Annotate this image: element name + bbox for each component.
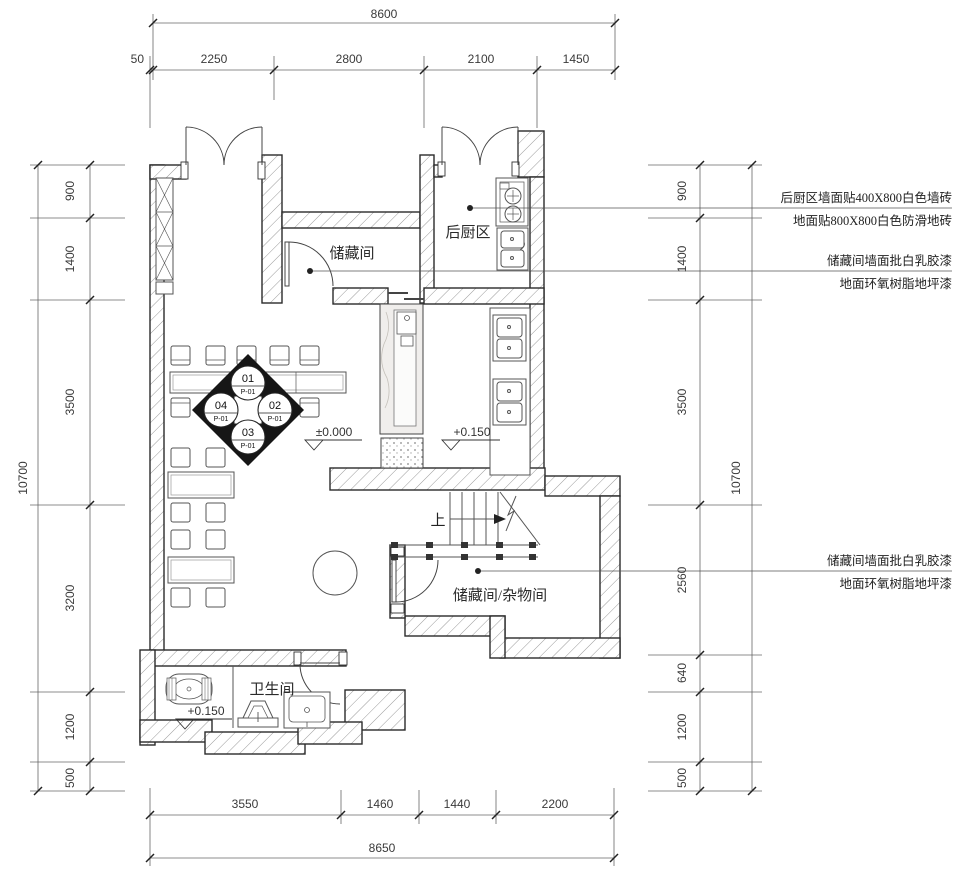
dim-left-3500: 3500 xyxy=(63,388,77,415)
annotation-kitchen-wall: 后厨区墙面贴400X800白色墙砖 xyxy=(780,190,952,205)
annotation-kitchen-floor: 地面贴800X800白色防滑地砖 xyxy=(793,213,952,228)
wall-top-right-corner xyxy=(518,131,544,177)
leader-dot-storage xyxy=(307,268,313,274)
dim-left-1200: 1200 xyxy=(63,713,77,740)
dim-left-1400: 1400 xyxy=(63,245,77,272)
stove xyxy=(496,178,528,226)
wall-kitchen-left xyxy=(420,155,434,303)
annotation-storage-wall: 储藏间墙面批白乳胶漆 xyxy=(827,253,952,268)
annotation-storage-floor: 地面环氧树脂地坪漆 xyxy=(839,276,952,291)
room-label-storage-lower: 储藏间/杂物间 xyxy=(453,587,547,604)
wall-storage-bottom xyxy=(333,288,388,304)
room-label-bathroom: 卫生间 xyxy=(249,681,294,698)
kitchen-double-door xyxy=(442,127,518,165)
dim-bot-total: 8650 xyxy=(369,841,396,855)
squat-pan xyxy=(238,701,278,727)
entry-double-door xyxy=(186,127,262,165)
toilet xyxy=(166,674,212,704)
walls xyxy=(140,131,620,754)
shaft-column xyxy=(381,438,423,468)
index-right-ref: P-01 xyxy=(268,416,283,423)
dim-right-500: 500 xyxy=(675,768,689,788)
dim-left-900: 900 xyxy=(63,181,77,201)
annotation-storage2-floor: 地面环氧树脂地坪漆 xyxy=(839,576,952,591)
dim-bot-3550: 3550 xyxy=(232,797,259,811)
index-left-ref: P-01 xyxy=(214,416,229,423)
dim-right-1400: 1400 xyxy=(675,245,689,272)
prep-sink-counter xyxy=(490,308,530,475)
stair-cut-line xyxy=(500,492,540,545)
level-bathroom-value: +0.150 xyxy=(187,704,224,718)
wall-right-lower xyxy=(600,496,620,658)
wall-storage-top xyxy=(282,212,420,228)
wall-bath-bottom-1 xyxy=(140,720,212,742)
leader-dot-kitchen xyxy=(467,205,473,211)
index-right-num: 02 xyxy=(269,400,281,412)
dim-right-total: 10700 xyxy=(729,461,743,495)
round-table xyxy=(313,551,357,595)
dim-bot-1460: 1460 xyxy=(367,797,394,811)
island-marble-counter xyxy=(380,304,423,434)
dim-top-total: 8600 xyxy=(371,7,398,21)
dim-right-640: 640 xyxy=(675,663,689,683)
room-label-storage-top: 储藏间 xyxy=(329,245,374,262)
dim-left-total: 10700 xyxy=(16,461,30,495)
dim-left-500: 500 xyxy=(63,768,77,788)
dim-bot-2200: 2200 xyxy=(542,797,569,811)
wall-bath-bottom-2 xyxy=(205,732,305,754)
dim-top-2800: 2800 xyxy=(336,52,363,66)
dim-right-2560: 2560 xyxy=(675,566,689,593)
dim-left-3200: 3200 xyxy=(63,584,77,611)
wall-cabinet xyxy=(156,178,173,294)
floor-plan-drawing: 8600 50 2250 2800 2100 1450 3550 1460 14… xyxy=(0,0,960,880)
dim-right-900: 900 xyxy=(675,181,689,201)
stairs xyxy=(390,492,540,560)
level-dining xyxy=(305,440,362,450)
storage-door xyxy=(285,242,333,286)
dim-top-2250: 2250 xyxy=(201,52,228,66)
wall-ext-top xyxy=(545,476,620,496)
level-dining-value: ±0.000 xyxy=(316,425,353,439)
dim-top-2100: 2100 xyxy=(468,52,495,66)
wall-right-upper xyxy=(530,177,544,480)
dim-right-3500: 3500 xyxy=(675,388,689,415)
wall-bath-top xyxy=(150,650,346,666)
table-column xyxy=(168,448,234,607)
room-label-kitchen: 后厨区 xyxy=(445,224,490,241)
dim-top-1450: 1450 xyxy=(563,52,590,66)
leader-dot-storage-lower xyxy=(475,568,481,574)
pass-through-slider xyxy=(388,293,424,299)
wall-store2-bottom-right xyxy=(500,638,620,658)
stair-landing-partition xyxy=(390,542,538,560)
dim-right-1200: 1200 xyxy=(675,713,689,740)
stair-up-label: 上 xyxy=(430,512,445,529)
wall-kitchen-bottom xyxy=(424,288,544,304)
annotation-storage2-wall: 储藏间墙面批白乳胶漆 xyxy=(827,553,952,568)
floor-plan-canvas: 8600 50 2250 2800 2100 1450 3550 1460 14… xyxy=(0,0,960,880)
level-kitchen-value: +0.150 xyxy=(453,425,490,439)
index-bottom-ref: P-01 xyxy=(241,443,256,450)
dim-top-50: 50 xyxy=(131,52,145,66)
dim-bot-1440: 1440 xyxy=(444,797,471,811)
index-top-ref: P-01 xyxy=(241,389,256,396)
index-left-num: 04 xyxy=(215,400,227,412)
index-top-num: 01 xyxy=(242,373,254,385)
wall-store2-joint xyxy=(490,616,505,658)
index-bottom-num: 03 xyxy=(242,427,254,439)
kitchen-sink xyxy=(497,228,528,270)
